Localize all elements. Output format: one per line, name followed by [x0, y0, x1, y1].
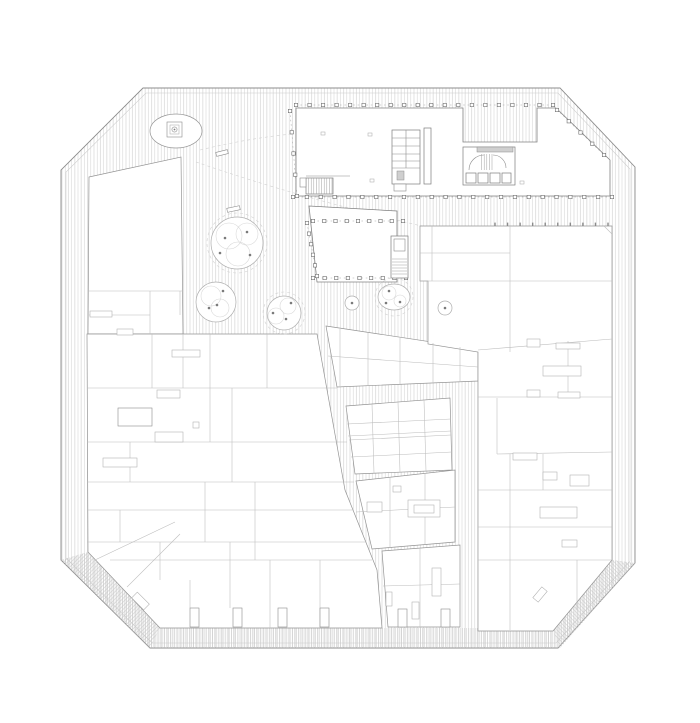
entry-stair — [306, 178, 333, 194]
site-plan-drawing — [0, 0, 700, 723]
column-marker — [569, 195, 572, 198]
column-marker — [335, 276, 338, 279]
column-marker — [375, 103, 378, 106]
tree-trunk-dot — [444, 307, 447, 310]
column-marker — [472, 195, 475, 198]
core-b-room — [478, 173, 488, 183]
site-plan-page — [0, 0, 700, 723]
tree-trunk-dot — [219, 252, 222, 255]
column-marker — [591, 142, 594, 145]
column-marker — [402, 195, 405, 198]
column-marker — [579, 131, 582, 134]
column-marker — [567, 120, 570, 123]
tree — [438, 301, 452, 315]
column-marker — [356, 219, 359, 222]
column-marker — [538, 103, 541, 106]
tree — [375, 278, 413, 316]
chimney — [562, 540, 577, 547]
column-marker — [555, 195, 558, 198]
column-marker — [319, 195, 322, 198]
roof-tick — [557, 223, 558, 226]
column-marker — [499, 195, 502, 198]
tree-canopy — [211, 217, 263, 269]
column-marker — [583, 195, 586, 198]
column-marker — [416, 195, 419, 198]
chimney — [172, 350, 200, 357]
column-marker — [311, 219, 314, 222]
chimney — [558, 392, 580, 398]
column-marker — [335, 103, 338, 106]
chimney — [103, 458, 137, 467]
column-marker — [379, 219, 382, 222]
tree-trunk-dot — [222, 290, 225, 293]
roof-tick — [607, 223, 608, 226]
roof-tick — [494, 223, 495, 226]
core-a-room — [394, 184, 406, 191]
column-marker — [369, 276, 372, 279]
entry-landing — [300, 178, 306, 187]
roof-notch — [398, 609, 407, 627]
tree — [345, 296, 359, 310]
tree-trunk-dot — [224, 237, 227, 240]
chimney — [386, 592, 392, 606]
column-marker — [315, 274, 318, 277]
column-marker — [485, 195, 488, 198]
tree-trunk-dot — [208, 307, 211, 310]
column-marker — [375, 195, 378, 198]
chimney — [367, 502, 382, 512]
column-marker — [358, 276, 361, 279]
column-marker — [313, 264, 316, 267]
column-marker — [288, 109, 291, 112]
column-marker — [305, 195, 308, 198]
chimney — [90, 311, 112, 317]
chimney — [543, 472, 557, 480]
column-marker — [305, 221, 308, 224]
chimney — [118, 408, 152, 426]
column-marker — [381, 276, 384, 279]
tree-trunk-dot — [216, 304, 219, 307]
layer-building-north — [288, 103, 613, 198]
column-marker — [610, 195, 613, 198]
column-row-top — [311, 219, 404, 222]
tree-trunk-dot — [399, 301, 402, 304]
chimney — [432, 568, 441, 596]
column-marker — [443, 103, 446, 106]
chimney — [556, 343, 580, 349]
chimney — [527, 339, 540, 347]
column-marker — [430, 103, 433, 106]
column-marker — [602, 153, 605, 156]
roof-tick — [519, 223, 520, 226]
column-marker — [368, 219, 371, 222]
chimney — [117, 329, 133, 335]
column-marker — [294, 173, 297, 176]
roof-block-northwest — [88, 157, 183, 334]
chimney — [193, 422, 199, 428]
column-marker — [497, 103, 500, 106]
column-marker — [484, 103, 487, 106]
column-marker — [390, 219, 393, 222]
column-marker — [555, 108, 558, 111]
column-marker — [416, 103, 419, 106]
column-marker — [361, 195, 364, 198]
column-marker — [511, 103, 514, 106]
chimney — [540, 507, 577, 518]
roof-tick — [595, 223, 596, 226]
column-marker — [295, 194, 298, 197]
column-marker — [551, 103, 554, 106]
column-marker — [596, 195, 599, 198]
column-marker — [309, 243, 312, 246]
column-marker — [389, 103, 392, 106]
roof-notch — [278, 608, 287, 627]
chimney — [157, 390, 180, 398]
column-marker — [334, 219, 337, 222]
chimney — [570, 475, 589, 486]
layer-building-pavilion — [305, 206, 408, 282]
column-marker — [541, 195, 544, 198]
floor-mark — [370, 179, 374, 182]
column-marker — [311, 276, 314, 279]
tree-trunk-dot — [246, 231, 249, 234]
roof-tick — [582, 223, 583, 226]
column-marker — [345, 219, 348, 222]
roof-tick — [570, 223, 571, 226]
chimney — [393, 486, 401, 492]
column-marker — [291, 195, 294, 198]
column-marker — [444, 195, 447, 198]
building-north-floor — [296, 108, 610, 196]
roof-tick — [532, 223, 533, 226]
building-pavilion-floor — [309, 206, 397, 282]
roof-notch — [441, 609, 450, 627]
tree-trunk-dot — [249, 254, 252, 257]
column-marker — [311, 253, 314, 256]
core-b-room — [466, 173, 476, 183]
floor-mark — [520, 181, 524, 184]
roof-tick — [545, 223, 546, 226]
core-b-room — [502, 173, 511, 183]
column-marker — [308, 103, 311, 106]
column-marker — [524, 103, 527, 106]
column-marker — [513, 195, 516, 198]
floor-mark — [321, 132, 325, 135]
column-marker — [401, 219, 404, 222]
tree-trunk-dot — [385, 302, 388, 305]
column-marker — [307, 232, 310, 235]
column-marker — [323, 219, 326, 222]
chimney — [543, 366, 581, 376]
chimney — [414, 505, 434, 513]
floor-mark — [368, 133, 372, 136]
core-a-cell — [397, 171, 404, 180]
fountain-dot — [174, 129, 176, 131]
column-marker — [346, 276, 349, 279]
roof-notch — [190, 608, 199, 627]
tree-trunk-dot — [285, 318, 288, 321]
column-marker — [430, 195, 433, 198]
roof-notch — [320, 608, 329, 627]
column-marker — [403, 103, 406, 106]
column-marker — [458, 195, 461, 198]
column-marker — [321, 103, 324, 106]
column-marker — [348, 103, 351, 106]
chimney — [527, 390, 540, 397]
chimney — [155, 432, 183, 442]
roof-tick — [507, 223, 508, 226]
column-marker — [527, 195, 530, 198]
core-b-bar — [477, 147, 513, 152]
column-marker — [347, 195, 350, 198]
column-marker — [333, 195, 336, 198]
chimney — [513, 453, 537, 460]
tree — [196, 282, 236, 322]
tree-trunk-dot — [388, 290, 391, 293]
tree-trunk-dot — [272, 312, 275, 315]
column-marker — [290, 131, 293, 134]
tree-trunk-dot — [290, 302, 293, 305]
column-marker — [323, 276, 326, 279]
pavilion-core-cab — [394, 239, 405, 251]
column-marker — [362, 103, 365, 106]
wall-slab — [424, 128, 431, 184]
column-marker — [388, 195, 391, 198]
column-marker — [457, 103, 460, 106]
core-b-room — [490, 173, 500, 183]
chimney — [412, 602, 419, 619]
column-marker — [294, 103, 297, 106]
tree-trunk-dot — [351, 302, 354, 305]
column-marker — [470, 103, 473, 106]
roof-notch — [233, 608, 242, 627]
column-marker — [292, 152, 295, 155]
